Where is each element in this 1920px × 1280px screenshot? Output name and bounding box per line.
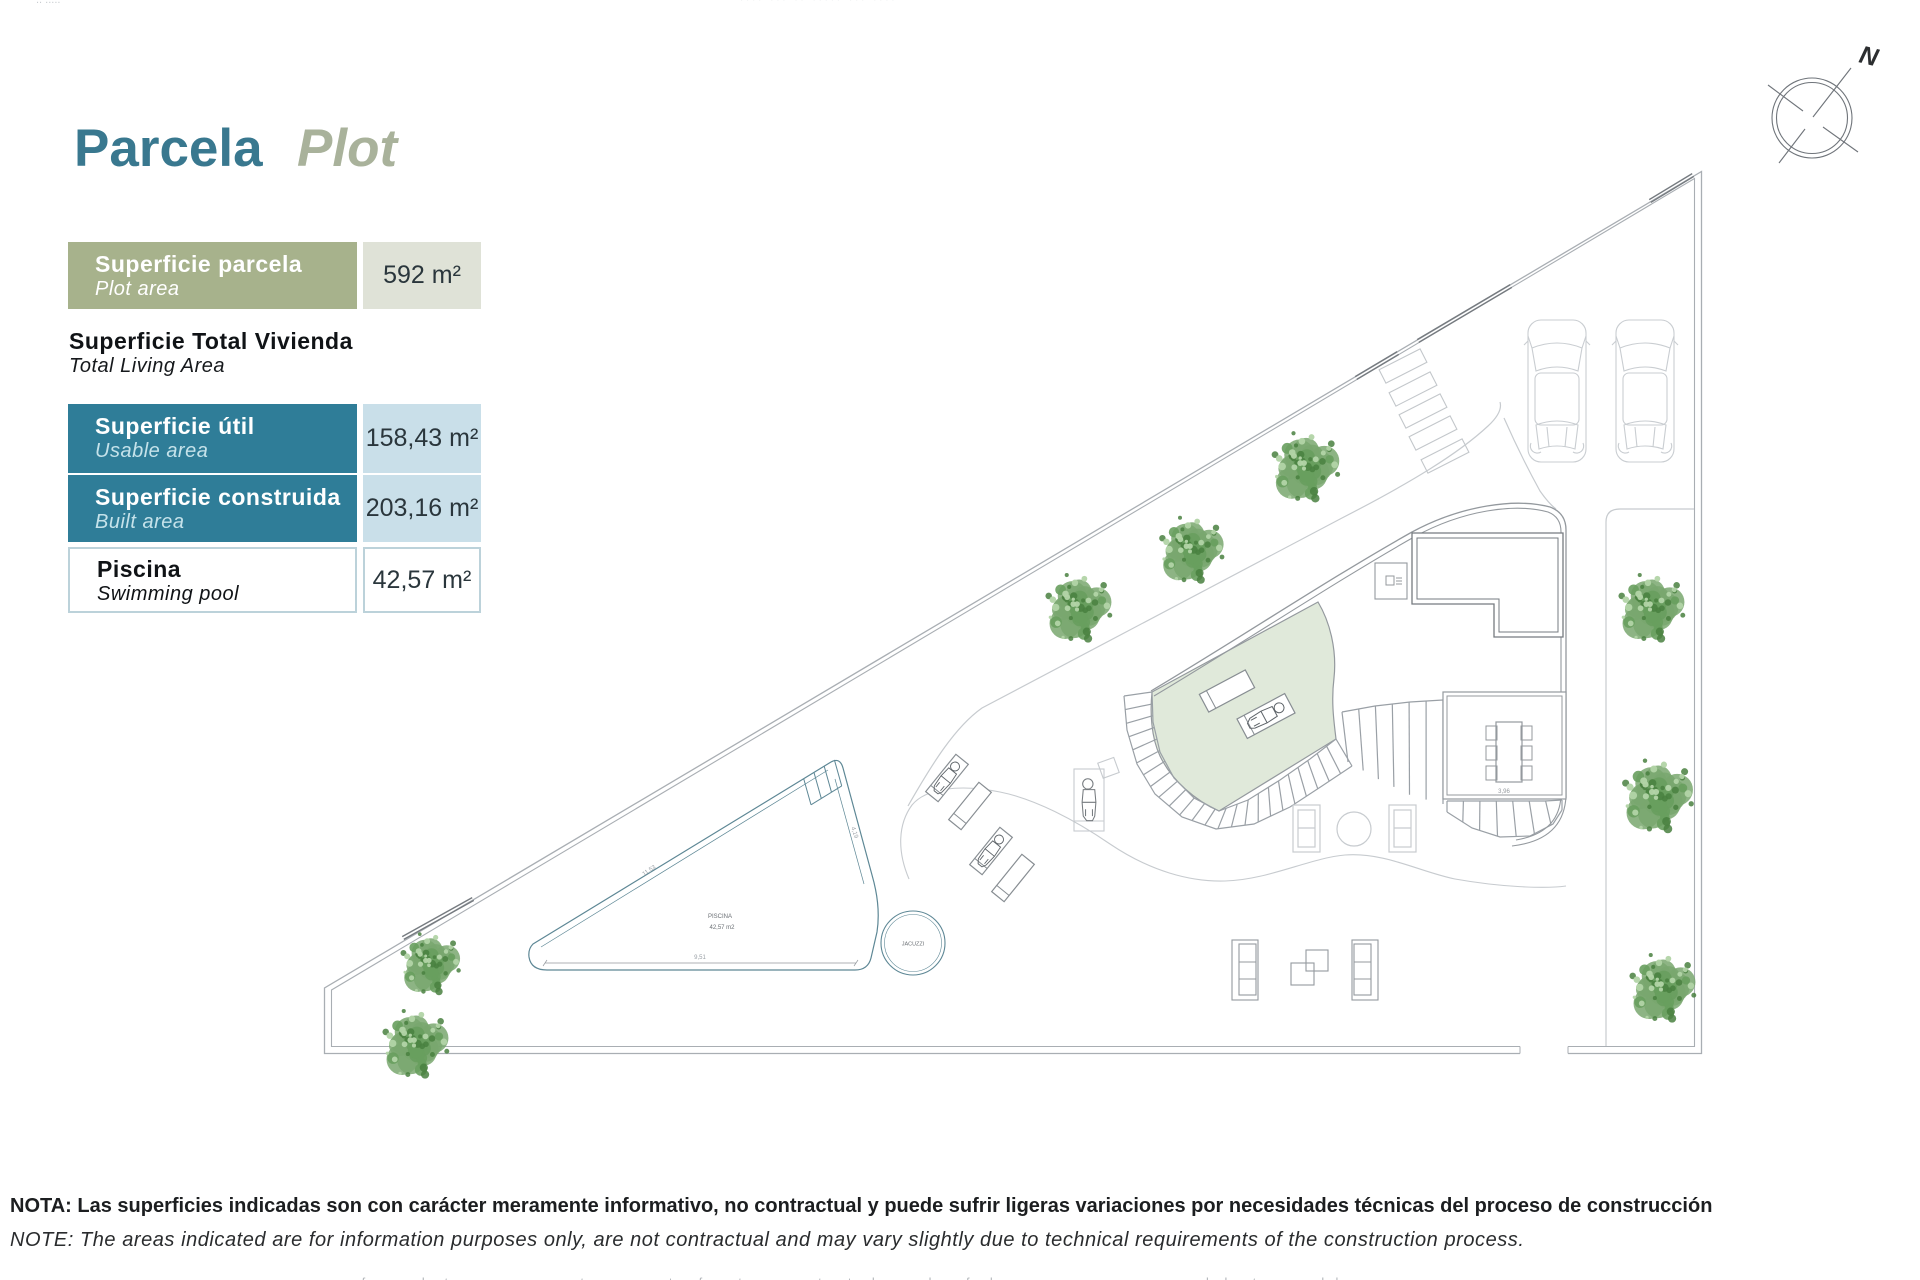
svg-text:N: N bbox=[1857, 41, 1882, 73]
svg-text:PISCINA: PISCINA bbox=[708, 914, 732, 920]
svg-text:9,51: 9,51 bbox=[694, 955, 706, 961]
svg-text:3,96: 3,96 bbox=[1498, 789, 1510, 795]
svg-text:42,57 m2: 42,57 m2 bbox=[709, 925, 735, 931]
svg-text:JACUZZI: JACUZZI bbox=[902, 942, 925, 948]
